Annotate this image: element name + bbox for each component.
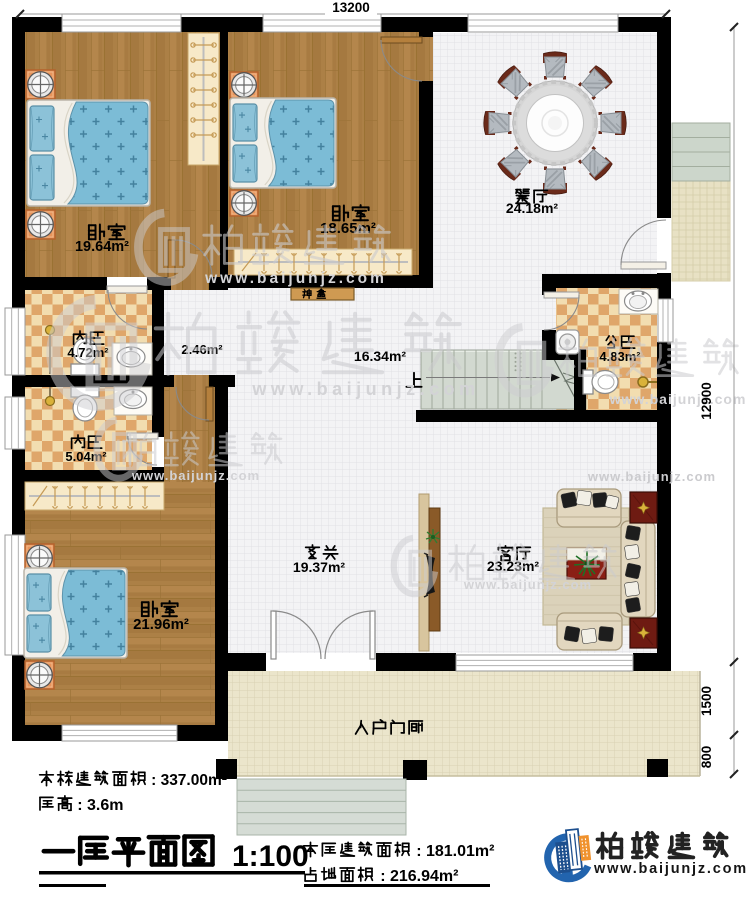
svg-text:: 337.00m²: : 337.00m² (148, 772, 227, 789)
svg-text:1500: 1500 (699, 686, 714, 716)
svg-text:www.baijunjz.com: www.baijunjz.com (251, 379, 479, 399)
svg-text:www.baijunjz.com: www.baijunjz.com (587, 469, 716, 484)
svg-text:1:100: 1:100 (232, 840, 309, 873)
svg-text:www.baijunjz.com: www.baijunjz.com (463, 577, 592, 592)
svg-text:www.baijunjz.com: www.baijunjz.com (204, 270, 387, 287)
svg-text:19.64m²: 19.64m² (75, 239, 129, 255)
svg-text:19.37m²: 19.37m² (293, 559, 345, 575)
svg-text:: 216.94m²: : 216.94m² (377, 868, 458, 885)
svg-text:www.baijunjz.com: www.baijunjz.com (593, 861, 748, 877)
svg-text:800: 800 (699, 746, 714, 769)
svg-text:21.96m²: 21.96m² (133, 616, 189, 633)
svg-text:: 3.6m: : 3.6m (74, 797, 123, 814)
svg-text:12900: 12900 (699, 382, 714, 420)
svg-text:13200: 13200 (332, 0, 370, 15)
svg-text:www.baijunjz.com: www.baijunjz.com (131, 468, 260, 483)
svg-text:: 181.01m²: : 181.01m² (413, 843, 494, 860)
svg-text:www.baijunjz.com: www.baijunjz.com (609, 391, 747, 407)
svg-text:24.18m²: 24.18m² (506, 200, 558, 216)
